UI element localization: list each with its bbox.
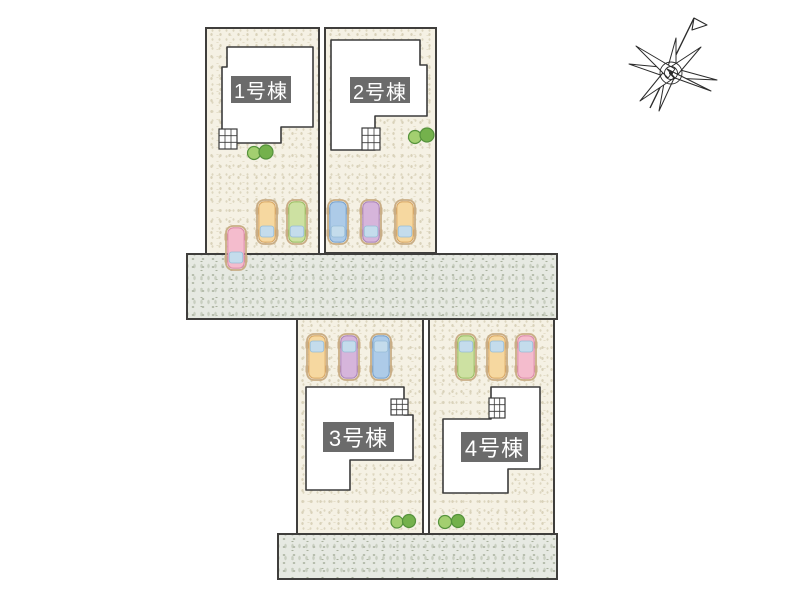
building-2-porch-grid: [362, 128, 380, 150]
lot-4-label-badge: 4号棟: [461, 432, 528, 462]
car-purple-lot3: [338, 334, 361, 380]
tree-icon: [439, 516, 452, 529]
tree-icon: [259, 145, 273, 159]
building-1-porch-grid: [219, 129, 237, 149]
car-orange-lot4: [486, 334, 509, 380]
lot-3-label-badge: 3号棟: [323, 422, 394, 452]
car-orange-lot1: [256, 200, 279, 244]
car-orange-lot3: [306, 334, 329, 380]
car-pink-lot1: [225, 226, 248, 270]
car-purple-lot2: [360, 200, 383, 244]
car-pink-lot4: [515, 334, 538, 380]
tree-icon: [403, 515, 416, 528]
car-green-lot1: [286, 200, 309, 244]
lot-1-label-badge: 1号棟: [231, 76, 291, 103]
site-plan: 1号棟 2号棟 3号棟 4号棟: [0, 0, 800, 600]
north-compass-icon: [629, 18, 717, 111]
cars-layer: [225, 200, 538, 380]
trees-layer: [248, 128, 465, 529]
tree-icon: [391, 516, 403, 528]
building-3-porch-grid: [391, 399, 408, 415]
car-orange-lot2: [394, 200, 417, 244]
building-4-porch-grid: [489, 398, 505, 418]
tree-icon: [452, 515, 465, 528]
tree-icon: [409, 131, 422, 144]
lot-2-label-badge: 2号棟: [350, 77, 410, 103]
car-blue-lot2: [327, 200, 350, 244]
tree-icon: [420, 128, 434, 142]
car-blue-lot3: [370, 334, 393, 380]
car-green-lot4: [455, 334, 478, 380]
